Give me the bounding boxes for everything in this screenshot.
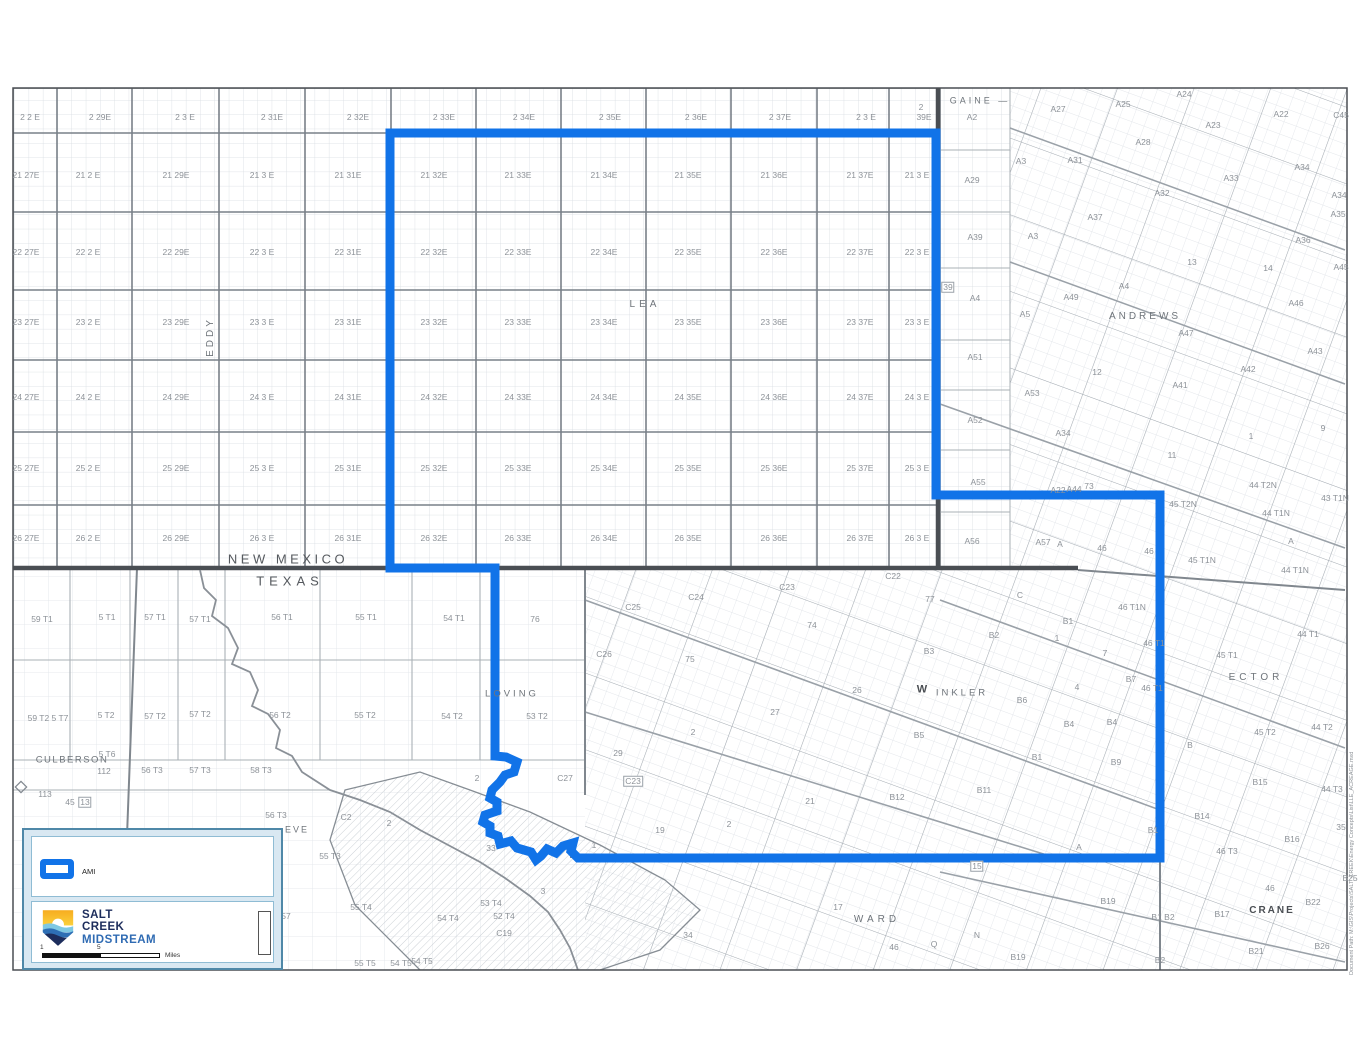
north-marker-box [258,911,271,955]
legend: AMI SALT CREEK [22,828,283,970]
legend-company-box: SALT CREEK MIDSTREAM 1 5 Miles [31,901,274,963]
document-path-note: Document Path: M:\GIS\Projects\SALT_CREE… [1349,752,1355,975]
company-name-line2: CREEK [82,921,156,933]
legend-ami-box: AMI [31,836,274,897]
company-name-line1: SALT [82,909,156,921]
map-viewport: 239EGAINE —EDDYLEANEW MEXICOTEXASANDREWS… [0,0,1365,1055]
scale-bar-outline [100,953,160,958]
company-name: SALT CREEK MIDSTREAM [82,909,156,947]
company-logo-icon [41,908,75,948]
scale-bar-filled [42,953,100,958]
scale-mid-label: 5 [97,944,101,951]
ami-swatch [40,859,74,879]
company-name-line3: MIDSTREAM [82,934,156,947]
ami-label: AMI [82,867,95,876]
scale-unit-label: Miles [165,952,180,959]
scale-start-label: 1 [40,944,44,951]
